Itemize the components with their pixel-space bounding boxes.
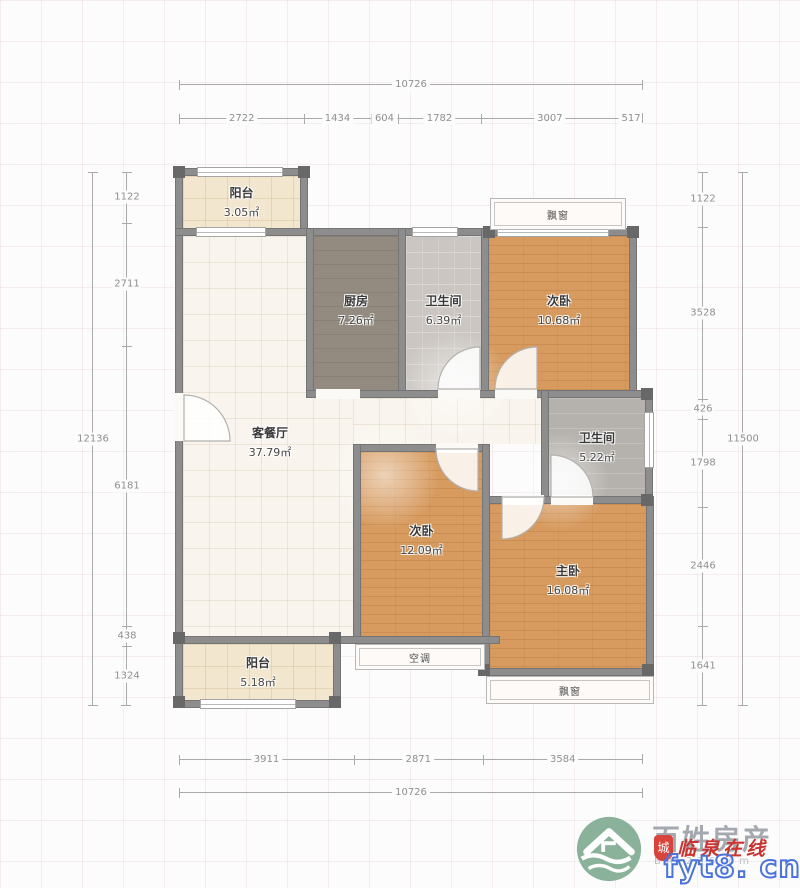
- dim-segment: 2711: [126, 223, 127, 346]
- room-kitchen: [314, 236, 398, 390]
- wall: [541, 390, 549, 504]
- wall: [481, 228, 489, 394]
- dim-segment: 1122: [126, 172, 127, 223]
- wall: [629, 228, 637, 394]
- window: [412, 227, 458, 237]
- wall-corner: [641, 494, 653, 506]
- room-living-lower: [183, 392, 353, 640]
- dim-segment: 3584: [483, 759, 643, 760]
- door-opening: [502, 495, 544, 505]
- wall-corner: [173, 696, 185, 708]
- room-balcony-bottom: [183, 644, 333, 700]
- bay-window-bottom: 飘窗: [486, 676, 654, 704]
- dim-label: 1434: [322, 113, 353, 125]
- dim-label: 1641: [688, 660, 717, 673]
- wall-corner: [329, 632, 341, 644]
- dim-bottom-total: 10726: [179, 792, 643, 793]
- room-bath-mid: [549, 398, 645, 496]
- dim-label: 2711: [112, 278, 141, 291]
- dim-left-total: 12136: [92, 172, 93, 706]
- wall-corner: [641, 388, 653, 400]
- bay-window-label: 飘窗: [559, 683, 581, 698]
- ac-platform: 空调: [355, 644, 485, 670]
- wall: [300, 168, 308, 236]
- wall-corner: [329, 696, 341, 708]
- dim-segment: 3007: [481, 118, 620, 119]
- room-bedroom-top: [489, 236, 629, 390]
- dim-segment: 1324: [126, 646, 127, 706]
- dim-label: 426: [691, 402, 714, 415]
- door-opening: [438, 389, 480, 399]
- room-bedroom-mid: [361, 452, 482, 636]
- door-opening: [551, 495, 593, 505]
- window: [197, 167, 283, 177]
- floorplan-canvas: 10726 2722 1434 604 1782 3007 517 3911 2…: [0, 0, 800, 888]
- room-master: [490, 504, 646, 668]
- dim-label: 3911: [251, 754, 282, 766]
- room-balcony-top: [183, 176, 300, 228]
- dim-segment: 604: [371, 118, 399, 119]
- dim-label: 10726: [392, 79, 430, 91]
- dim-label: 2871: [403, 754, 434, 766]
- window: [200, 699, 296, 709]
- dim-label: 3528: [688, 306, 717, 319]
- wall-corner: [642, 664, 654, 676]
- dim-label: 11500: [725, 433, 761, 446]
- dim-segment: 2722: [179, 118, 304, 119]
- dim-segment: 1641: [702, 626, 703, 706]
- dim-segment: 3911: [179, 759, 354, 760]
- dim-segment: 6181: [126, 346, 127, 626]
- dim-label: 3584: [547, 754, 578, 766]
- room-bath-top: [406, 236, 481, 390]
- dim-label: 6181: [112, 479, 141, 492]
- dim-label: 3007: [534, 113, 565, 125]
- dim-label: 10726: [392, 787, 430, 799]
- dim-label: 604: [372, 113, 397, 125]
- dim-segment: 1122: [702, 172, 703, 227]
- wall: [646, 496, 654, 676]
- dim-segment: 2871: [354, 759, 483, 760]
- watermark: 百姓房产 BA 236 om 城 临泉在线 fyt8. cn: [572, 812, 800, 888]
- dim-segment: 3528: [702, 227, 703, 399]
- dim-label: 438: [115, 630, 138, 643]
- wall-corner: [627, 226, 639, 238]
- dim-segment: 1434: [304, 118, 370, 119]
- wall: [482, 668, 654, 676]
- dim-segment: 1782: [398, 118, 480, 119]
- wall-corner: [173, 166, 185, 178]
- dim-label: 1122: [688, 193, 717, 206]
- room-living-upper: [183, 236, 306, 396]
- dim-segment: 2446: [702, 507, 703, 626]
- wall: [353, 444, 361, 644]
- dim-label: 1324: [112, 669, 141, 682]
- room-hallway: [353, 398, 543, 444]
- dim-top-total: 10726: [179, 84, 643, 85]
- bay-window-top: 飘窗: [490, 198, 626, 230]
- dim-segment: 426: [702, 399, 703, 420]
- dim-label: 2446: [688, 560, 717, 573]
- dim-label: 517: [619, 113, 644, 125]
- dim-label: 1798: [688, 457, 717, 470]
- entry-door-opening: [174, 393, 184, 441]
- kitchen-opening: [316, 389, 360, 399]
- dim-segment: 1798: [702, 419, 703, 507]
- door-opening: [495, 389, 537, 399]
- wall-corner: [298, 166, 310, 178]
- wall-corner: [173, 632, 185, 644]
- ac-platform-label: 空调: [409, 650, 431, 665]
- dim-segment: 438: [126, 626, 127, 646]
- wall: [398, 228, 406, 394]
- dim-label: 12136: [75, 433, 111, 446]
- dim-right-total: 11500: [742, 172, 743, 706]
- bay-window-label: 飘窗: [547, 207, 569, 222]
- wall: [306, 228, 314, 398]
- dim-label: 1122: [112, 191, 141, 204]
- door-opening: [436, 443, 478, 453]
- dim-segment: 517: [619, 118, 643, 119]
- balcony-door-window: [196, 227, 266, 237]
- window: [644, 412, 654, 468]
- watermark-url: fyt8. cn: [664, 850, 800, 885]
- house-water-logo-icon: [574, 814, 644, 884]
- dim-label: 1782: [424, 113, 455, 125]
- dim-label: 2722: [226, 113, 257, 125]
